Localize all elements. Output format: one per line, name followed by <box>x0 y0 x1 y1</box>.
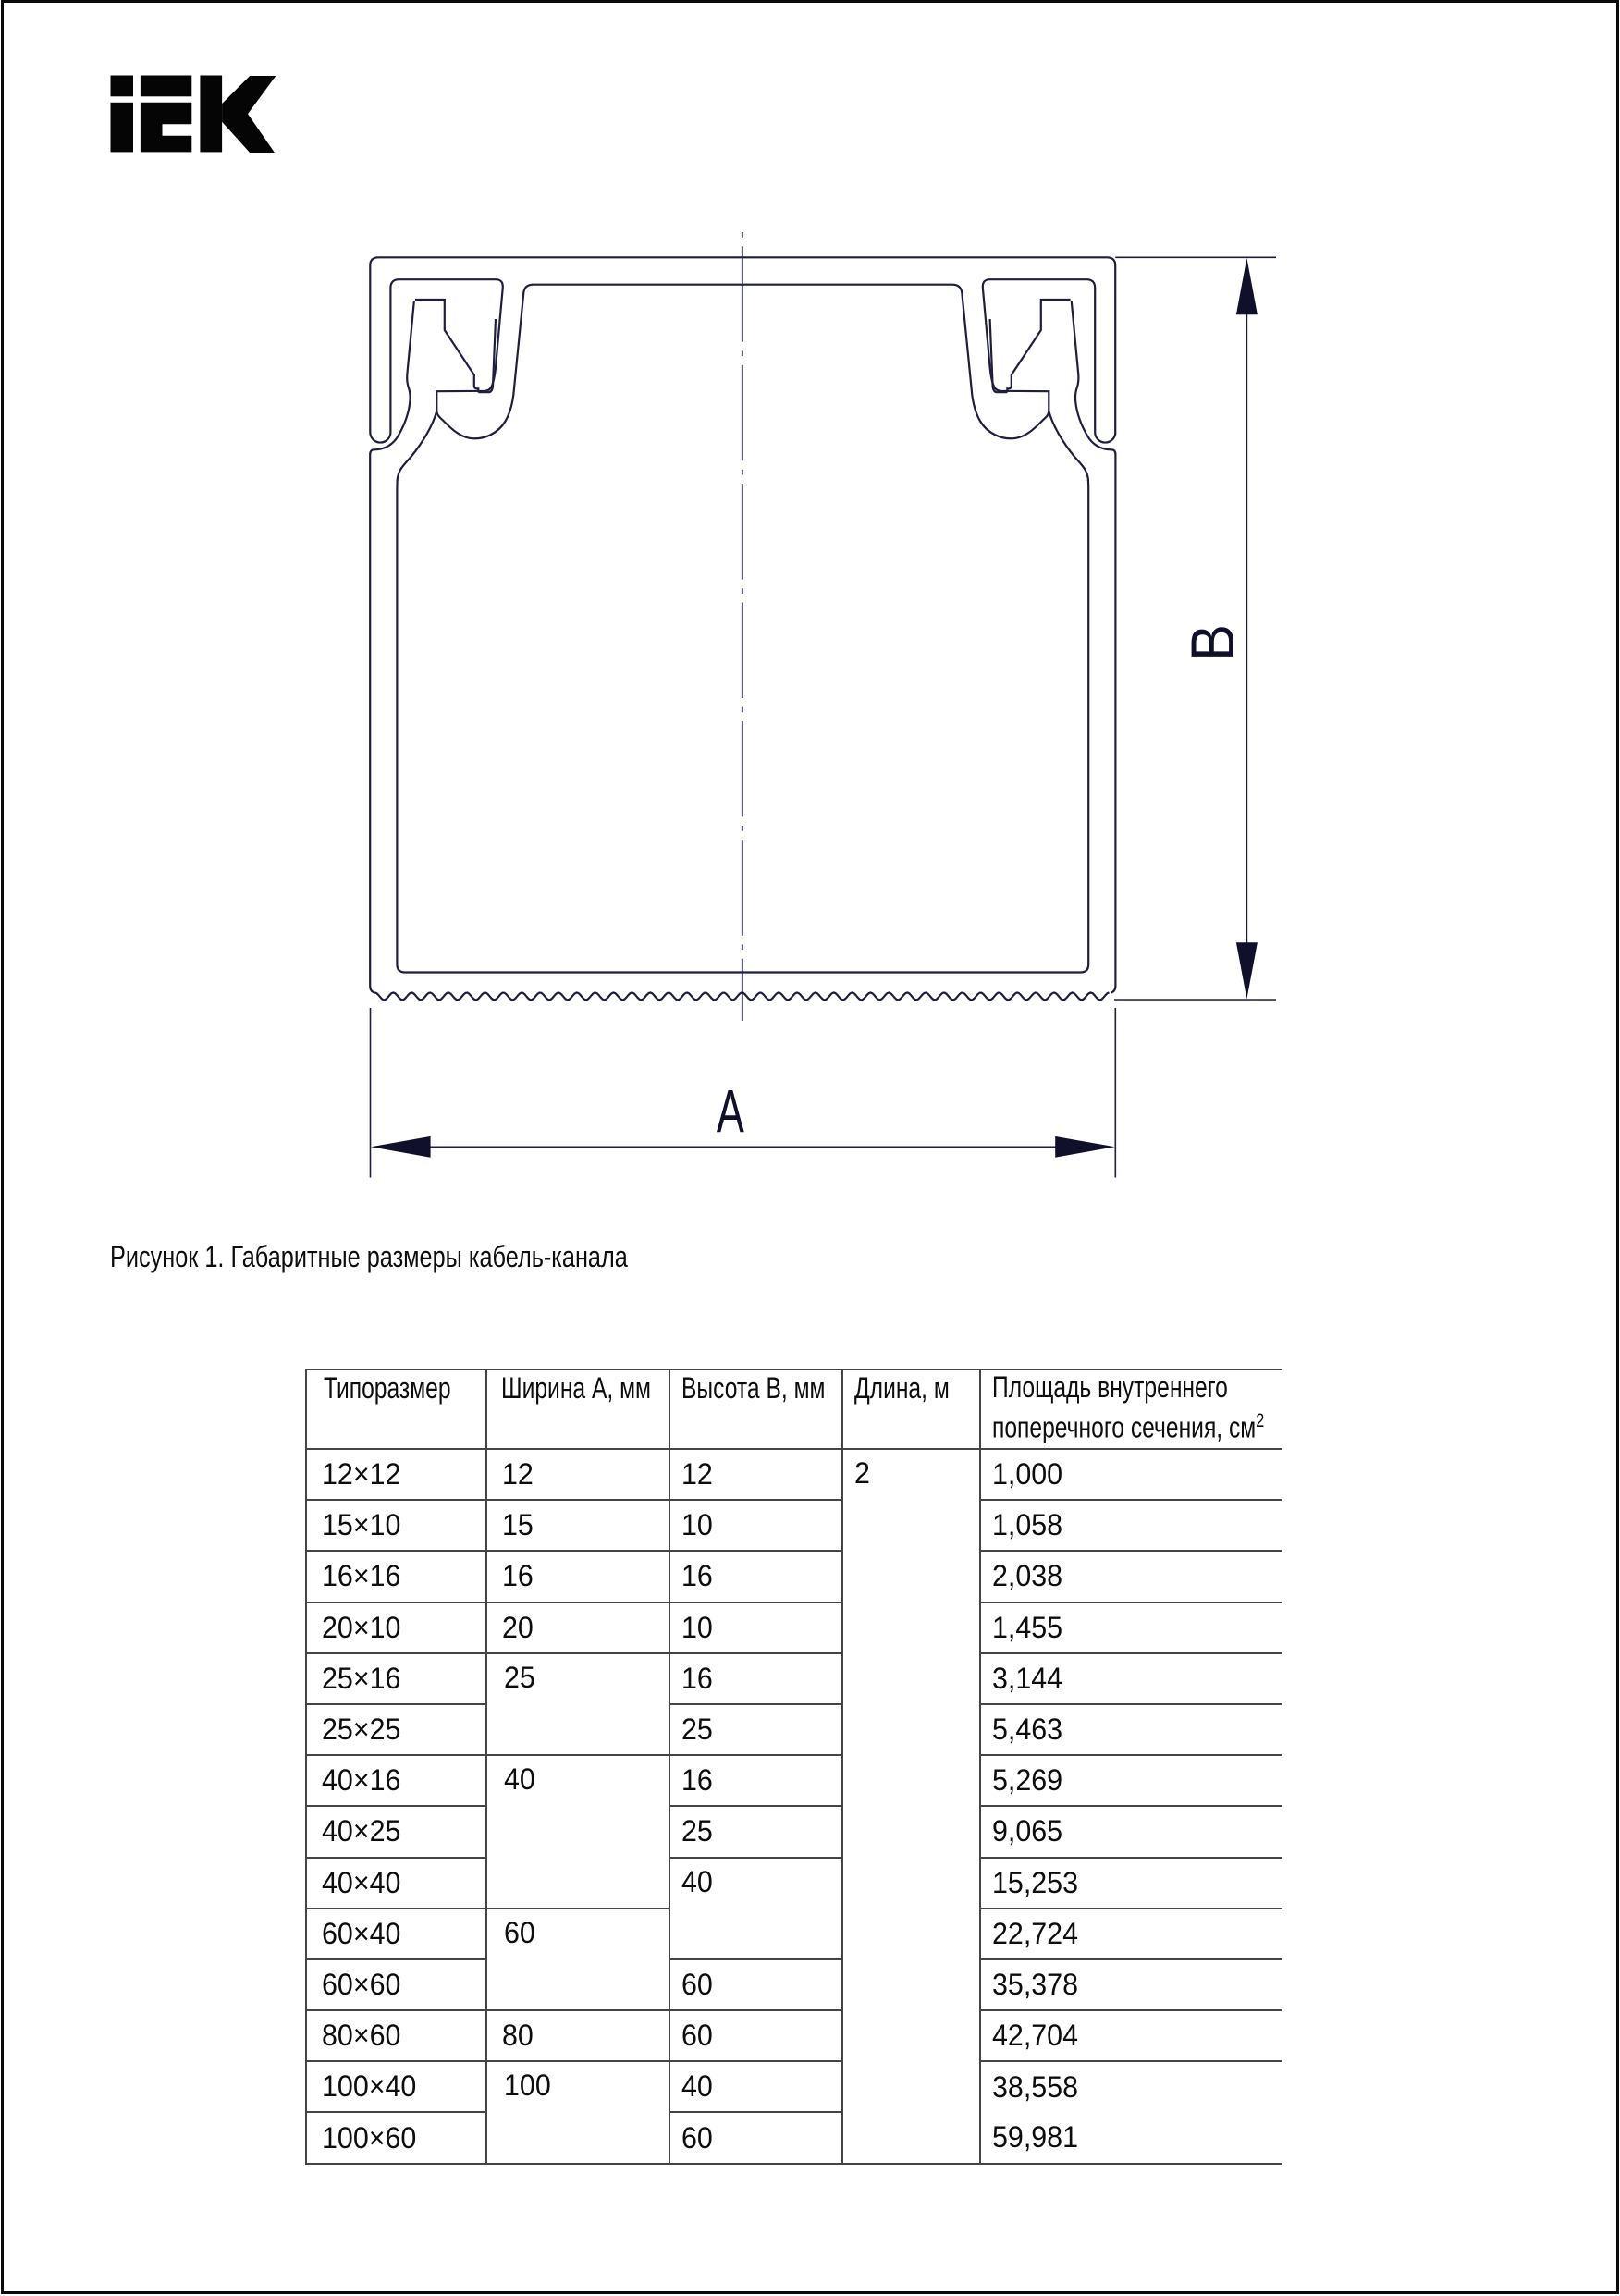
svg-text:А: А <box>717 1077 744 1146</box>
svg-text:В: В <box>1179 624 1247 661</box>
